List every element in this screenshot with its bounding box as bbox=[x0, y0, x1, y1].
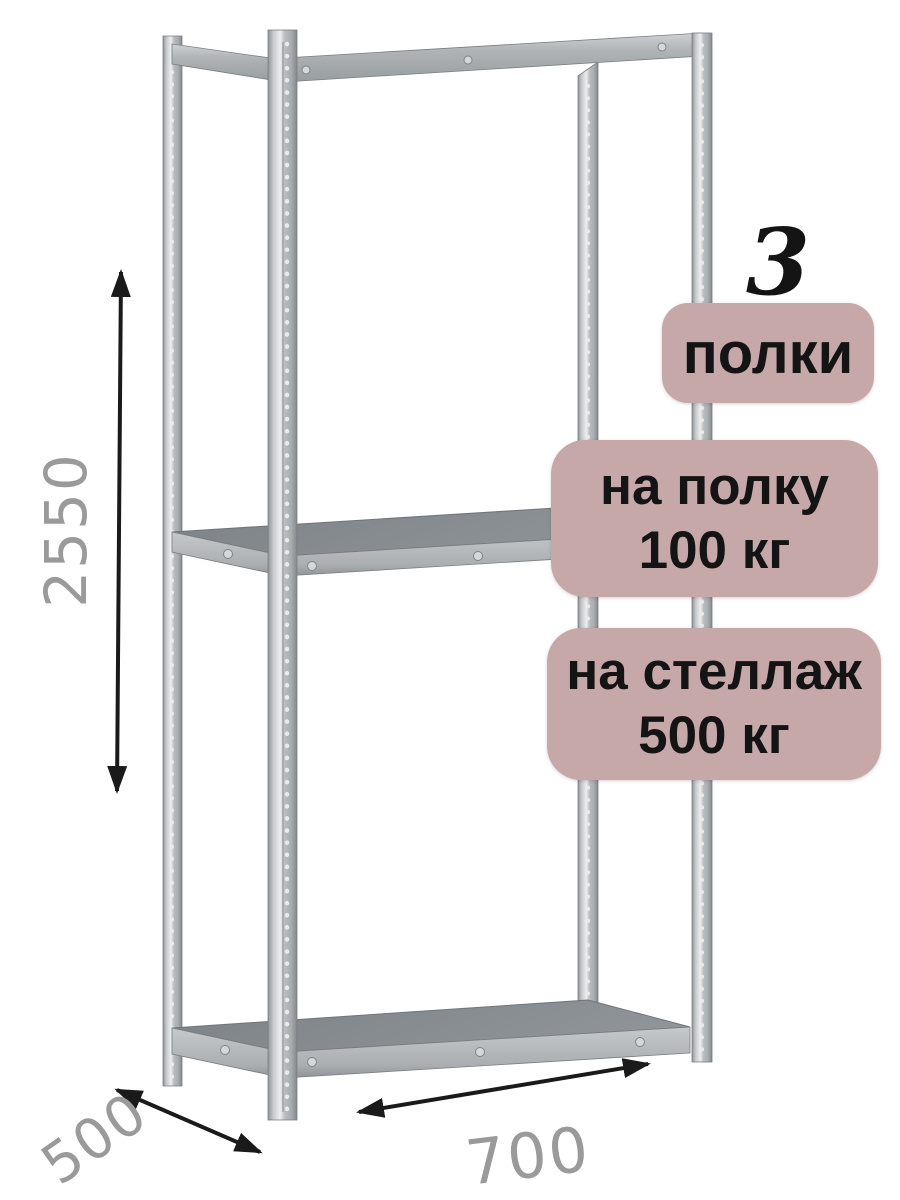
height-dimension-arrow bbox=[117, 272, 121, 791]
per-shelf-load-line1: на полку bbox=[600, 455, 829, 519]
width-dimension-label: 700 bbox=[462, 1112, 594, 1200]
per-shelf-load-line2: 100 кг bbox=[639, 519, 791, 583]
shelf-count-badge: полки bbox=[662, 303, 874, 403]
shelf-count-badge-label: полки bbox=[683, 320, 854, 387]
shelf-count-number: 3 bbox=[746, 208, 810, 316]
top-shelf bbox=[172, 33, 702, 82]
rack-front-left-post bbox=[268, 30, 297, 1120]
total-rack-load-line2: 500 кг bbox=[638, 704, 790, 768]
per-shelf-load-badge: на полку 100 кг bbox=[551, 440, 878, 597]
shelving-rack-illustration bbox=[0, 0, 900, 1200]
product-image: 2550 500 700 3 полки на полку 100 кг на … bbox=[0, 0, 900, 1200]
rack-back-left-post bbox=[163, 36, 182, 1086]
width-dimension-arrow bbox=[359, 1064, 648, 1112]
bottom-shelf bbox=[172, 1000, 690, 1078]
height-dimension-label: 2550 bbox=[32, 452, 100, 608]
total-rack-load-line1: на стеллаж bbox=[566, 640, 862, 704]
total-rack-load-badge: на стеллаж 500 кг bbox=[547, 628, 881, 780]
